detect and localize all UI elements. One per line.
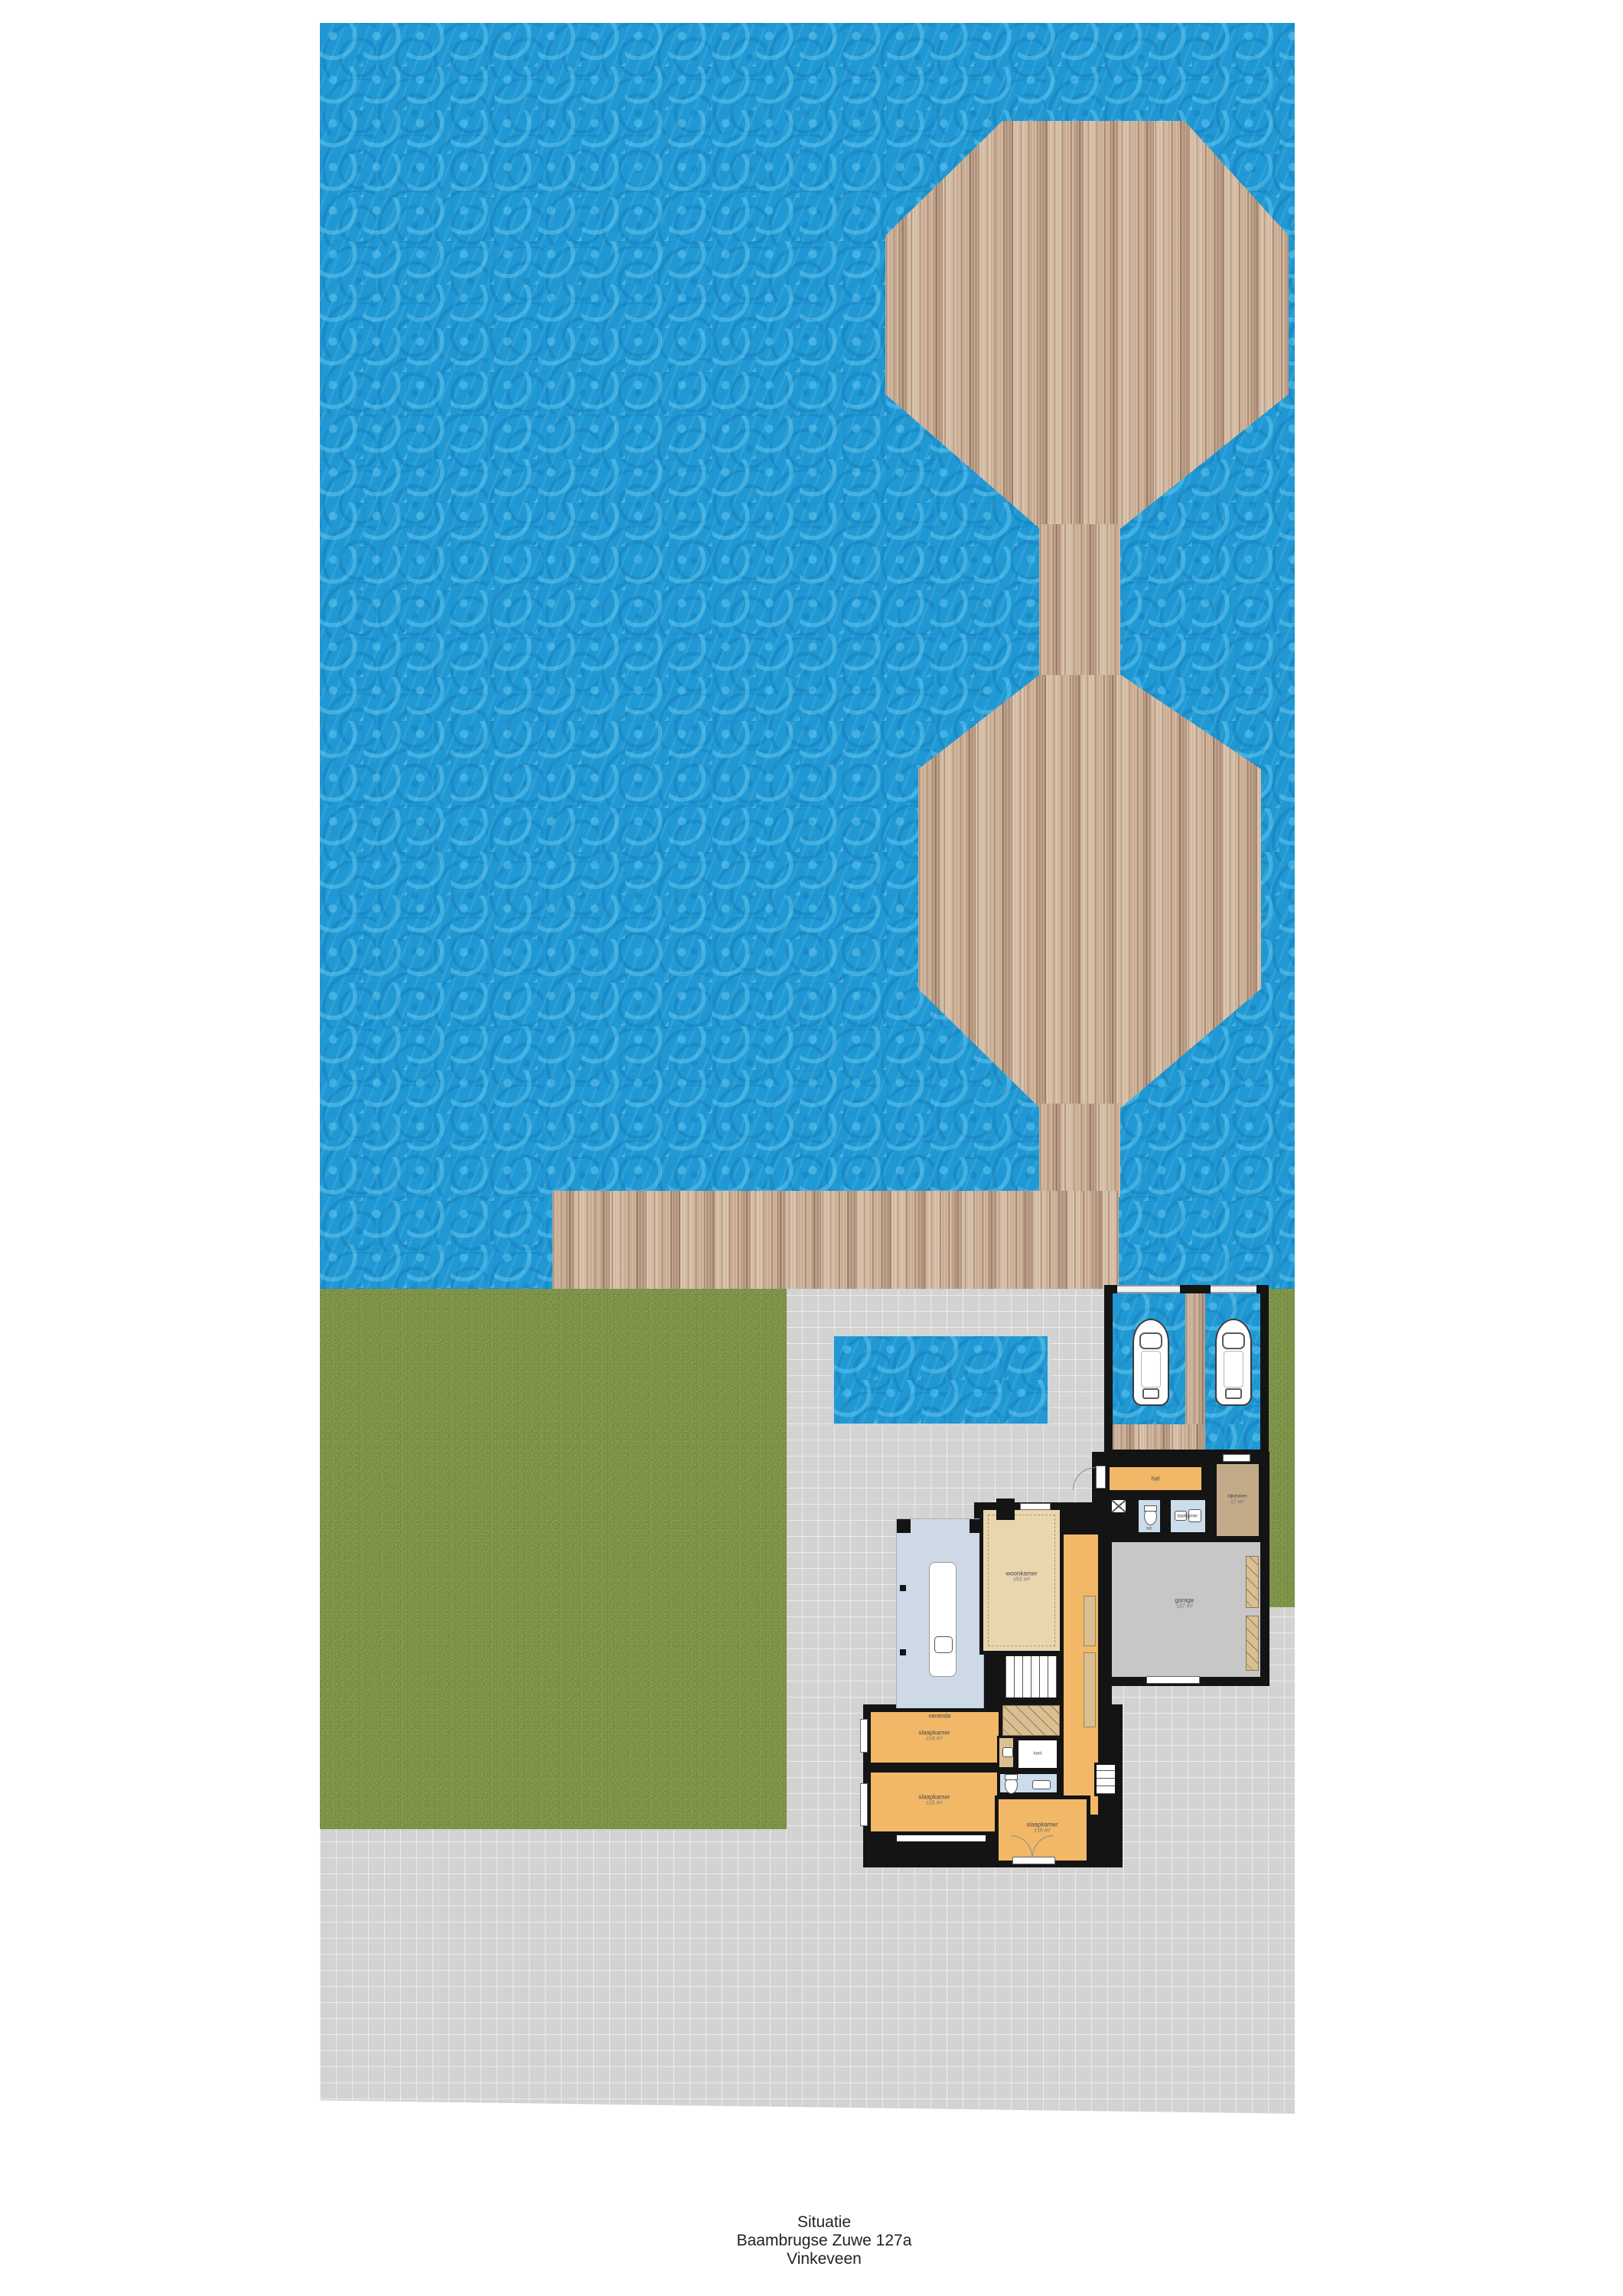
hall-cupboard <box>1084 1596 1096 1646</box>
garage-door-panel <box>1246 1616 1259 1671</box>
label-wc: wc <box>1146 1527 1152 1532</box>
boat-icon <box>1215 1319 1252 1406</box>
entrance-door-gap <box>1096 1466 1106 1489</box>
bijkeuken-window <box>1223 1454 1250 1462</box>
veranda-pillar <box>897 1519 911 1533</box>
lawn-strip-east <box>1269 1289 1295 1607</box>
counter-sink-icon <box>934 1636 953 1653</box>
site-plan: hal wc badkamer bijkeuken±7 m² garage±37… <box>320 23 1295 2120</box>
room-toilet-2 <box>997 1771 1060 1795</box>
sink-icon <box>1032 1780 1051 1789</box>
hall-cupboard <box>1084 1652 1096 1727</box>
slaapkamer1-window <box>860 1719 868 1753</box>
bay-window <box>895 1834 987 1843</box>
staircase-main <box>1002 1653 1060 1701</box>
shore-dock <box>552 1191 1119 1289</box>
caption-address: Baambrugse Zuwe 127a <box>556 2232 1092 2250</box>
label-bijkeuken: bijkeuken±7 m² <box>1227 1495 1247 1506</box>
veranda-post-dot <box>900 1649 906 1655</box>
boat-stern <box>1142 1388 1159 1399</box>
chimney <box>996 1499 1015 1520</box>
garage-door-panel <box>1246 1556 1259 1608</box>
boat-stern <box>1225 1388 1242 1399</box>
woonkamer-window <box>1020 1503 1051 1510</box>
boat-icon <box>1133 1319 1169 1406</box>
label-slaapkamer-2: slaapkamer±15 m² <box>918 1793 950 1806</box>
lawn <box>320 1289 787 1829</box>
label-woonkamer: woonkamer±52 m² <box>1005 1570 1037 1583</box>
boat-cockpit <box>1141 1351 1161 1388</box>
situatie-plan-page: { "caption": { "line1": "Situatie", "lin… <box>0 0 1623 2296</box>
label-veranda: veranda <box>929 1712 951 1719</box>
toilet-icon <box>1005 1778 1018 1794</box>
veranda-post-dot <box>900 1585 906 1591</box>
meterkast <box>1110 1498 1128 1515</box>
boat-windshield <box>1222 1332 1245 1349</box>
label-slaapkamer-1: slaapkamer±14 m² <box>918 1729 950 1742</box>
label-badkamer: badkamer <box>1178 1515 1198 1520</box>
room-veranda <box>897 1519 983 1726</box>
boathouse-deck <box>1113 1424 1205 1450</box>
swimming-pool <box>832 1334 1050 1426</box>
garderobe <box>1002 1705 1060 1736</box>
label-garage: garage±37 m² <box>1175 1596 1194 1609</box>
caption-city: Vinkeveen <box>556 2250 1092 2268</box>
slaapkamer3-door-gap <box>1012 1857 1055 1864</box>
garage-window <box>1146 1676 1200 1684</box>
veranda-counter <box>929 1562 957 1677</box>
boathouse <box>1104 1285 1269 1458</box>
label-hal: hal <box>1152 1475 1160 1482</box>
boathouse-door-left <box>1117 1285 1180 1293</box>
boat-cockpit <box>1224 1351 1243 1388</box>
label-kast: kast <box>1033 1752 1041 1757</box>
jetty-walkway-lower <box>1039 1104 1120 1197</box>
washbasin-nook <box>997 1736 1015 1769</box>
sink-icon <box>1002 1747 1013 1757</box>
caption-title: Situatie <box>556 2213 1092 2232</box>
boat-windshield <box>1139 1332 1162 1349</box>
boathouse-door-right <box>1211 1285 1256 1293</box>
toilet-icon <box>1144 1509 1157 1525</box>
jetty-walkway-upper <box>1039 524 1120 681</box>
label-slaapkamer-3: slaapkamer±16 m² <box>1026 1821 1058 1834</box>
slaapkamer2-window <box>860 1783 868 1826</box>
caption: Situatie Baambrugse Zuwe 127a Vinkeveen <box>556 2213 1092 2268</box>
staircase-secondary <box>1094 1763 1117 1796</box>
